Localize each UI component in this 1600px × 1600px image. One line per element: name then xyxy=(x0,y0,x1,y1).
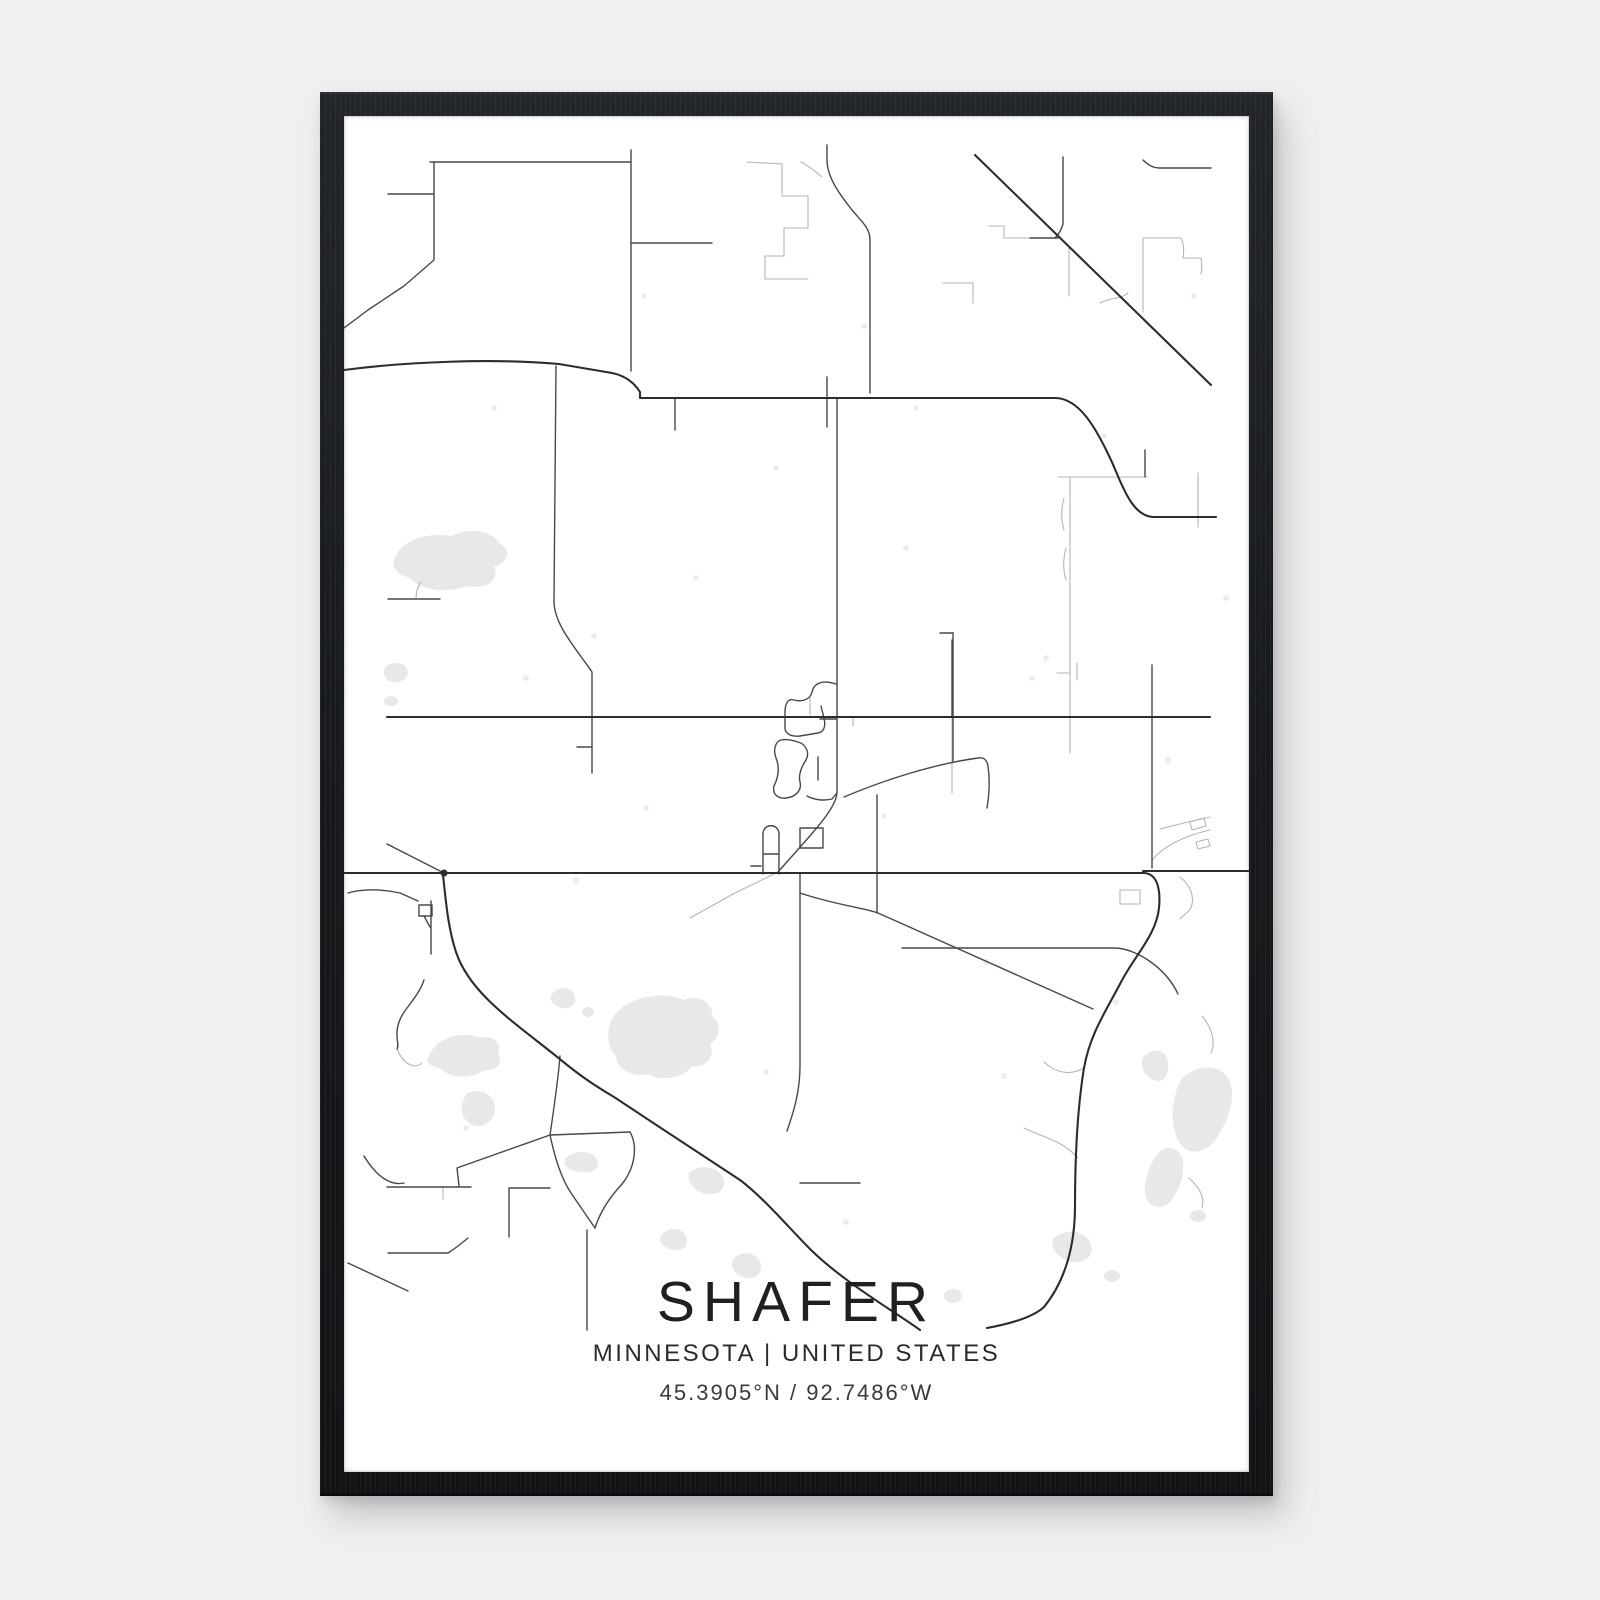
city-map xyxy=(344,116,1249,1472)
map-layer-speckles xyxy=(463,293,1229,1225)
map-layer-water xyxy=(384,531,1232,1303)
map-layer-roads-main xyxy=(344,155,1249,1330)
photo-background: SHAFER MINNESOTA | UNITED STATES 45.3905… xyxy=(0,0,1600,1600)
poster-paper: SHAFER MINNESOTA | UNITED STATES 45.3905… xyxy=(344,116,1249,1472)
map-layer-roads-medium xyxy=(344,145,1211,1330)
map-layer-roads-light xyxy=(397,162,1213,1208)
poster-frame: SHAFER MINNESOTA | UNITED STATES 45.3905… xyxy=(320,92,1273,1496)
